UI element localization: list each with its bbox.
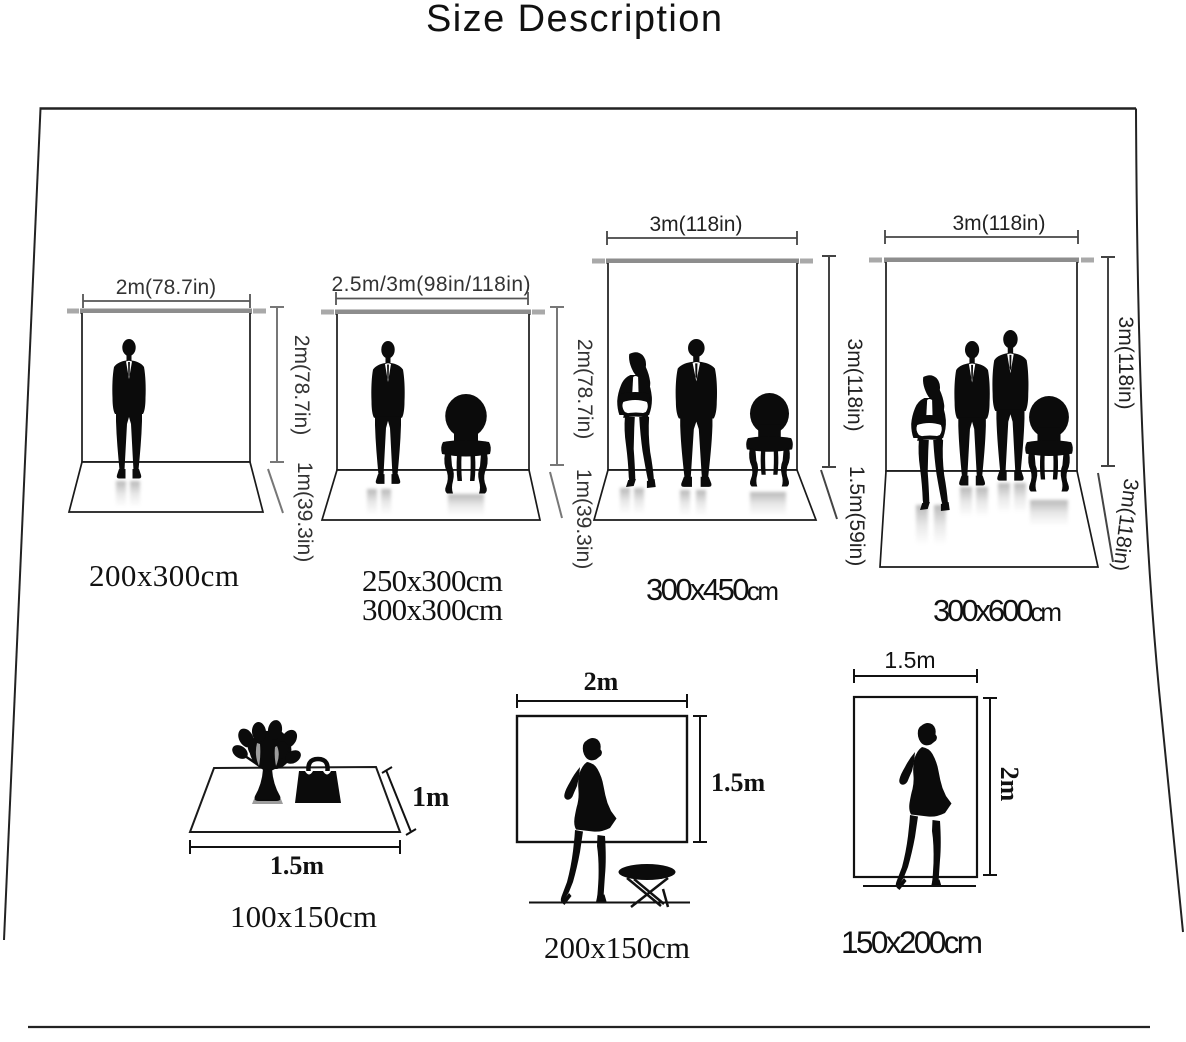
- svg-text:100x150cm: 100x150cm: [230, 899, 377, 934]
- svg-text:1m(39.3in): 1m(39.3in): [572, 469, 595, 569]
- svg-text:150x200cm: 150x200cm: [841, 924, 983, 960]
- svg-text:1.5m: 1.5m: [884, 647, 935, 673]
- svg-text:1.5m: 1.5m: [270, 851, 325, 880]
- svg-text:2m(78.7in): 2m(78.7in): [573, 339, 596, 439]
- svg-text:3m(118in): 3m(118in): [650, 213, 743, 236]
- svg-text:200x150cm: 200x150cm: [544, 930, 690, 965]
- svg-text:3m(118in): 3m(118in): [1114, 317, 1137, 410]
- svg-text:300x300cm: 300x300cm: [362, 592, 503, 627]
- svg-text:1m: 1m: [412, 782, 449, 813]
- svg-text:2m(78.7in): 2m(78.7in): [290, 335, 313, 435]
- svg-text:Size Description: Size Description: [426, 0, 722, 40]
- svg-text:3m(118in): 3m(118in): [1108, 477, 1142, 572]
- svg-text:300x600cm: 300x600cm: [933, 593, 1062, 628]
- svg-text:2m: 2m: [584, 667, 619, 696]
- svg-text:1.5m: 1.5m: [711, 768, 766, 797]
- svg-text:1.5m(59in): 1.5m(59in): [845, 466, 868, 566]
- svg-text:2m: 2m: [995, 767, 1024, 802]
- svg-text:2m(78.7in): 2m(78.7in): [116, 276, 216, 299]
- svg-text:300x450cm: 300x450cm: [646, 572, 779, 607]
- svg-text:3m(118in): 3m(118in): [843, 339, 866, 432]
- svg-text:1m(39.3in): 1m(39.3in): [293, 462, 316, 562]
- svg-text:2.5m/3m(98in/118in): 2.5m/3m(98in/118in): [332, 273, 531, 296]
- svg-text:3m(118in): 3m(118in): [953, 212, 1046, 235]
- svg-text:200x300cm: 200x300cm: [89, 558, 239, 593]
